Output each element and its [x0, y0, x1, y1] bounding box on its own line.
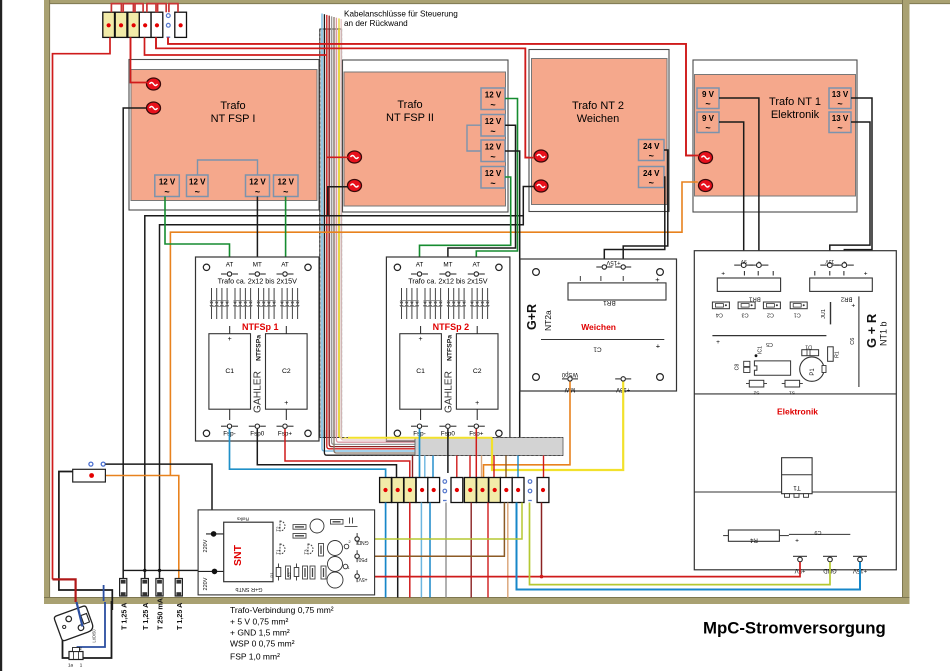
- svg-text:24 V: 24 V: [643, 142, 660, 151]
- svg-text:AT: AT: [473, 262, 481, 269]
- svg-text:Weichen: Weichen: [577, 113, 620, 125]
- svg-text:Trafo NT 1: Trafo NT 1: [769, 96, 821, 108]
- svg-text:~: ~: [649, 151, 654, 161]
- svg-text:MT: MT: [443, 262, 452, 269]
- svg-text:T 250 mA: T 250 mA: [156, 598, 165, 630]
- svg-text:~: ~: [490, 152, 495, 162]
- svg-text:Trafo: Trafo: [397, 99, 422, 111]
- svg-text:C1: C1: [225, 368, 234, 375]
- svg-text:220V: 220V: [203, 539, 209, 552]
- svg-text:+: +: [795, 538, 799, 545]
- svg-text:+: +: [656, 342, 661, 351]
- svg-text:~: ~: [843, 258, 846, 264]
- svg-text:GND: GND: [357, 539, 369, 545]
- svg-text:C8: C8: [735, 364, 741, 371]
- svg-text:1: 1: [347, 566, 349, 570]
- svg-text:G+R: G+R: [525, 304, 539, 330]
- svg-text:C3: C3: [742, 312, 749, 318]
- svg-text:P50: P50: [358, 556, 367, 562]
- svg-text:C6: C6: [850, 338, 856, 345]
- svg-text:C5: C5: [766, 341, 773, 347]
- svg-text:WSP 0 0,75 mm²: WSP 0 0,75 mm²: [230, 639, 295, 649]
- svg-text:~: ~: [649, 178, 654, 188]
- svg-text:NT FSP I: NT FSP I: [211, 113, 256, 125]
- svg-text:NTFSp 1: NTFSp 1: [242, 322, 279, 332]
- svg-text:220V: 220V: [203, 577, 209, 590]
- svg-text:Elektronik: Elektronik: [771, 109, 820, 121]
- svg-text:24 V: 24 V: [643, 169, 660, 178]
- svg-text:MT: MT: [253, 262, 262, 269]
- svg-text:D1: D1: [269, 572, 274, 578]
- svg-text:+: +: [419, 336, 423, 343]
- svg-text:12 V: 12 V: [485, 117, 502, 126]
- svg-text:NTFSp 2: NTFSp 2: [433, 322, 470, 332]
- svg-text:BR2: BR2: [840, 296, 852, 302]
- svg-text:T 1,25 A: T 1,25 A: [141, 603, 150, 630]
- svg-text:+ 5 V 0,75 mm²: + 5 V 0,75 mm²: [230, 617, 289, 627]
- svg-text:+: +: [851, 303, 855, 310]
- svg-text:12 V: 12 V: [485, 91, 502, 100]
- svg-text:C1: C1: [794, 312, 801, 318]
- svg-text:IC1: IC1: [758, 346, 764, 354]
- svg-text:~: ~: [837, 123, 842, 133]
- svg-text:FSP 1,0 mm²: FSP 1,0 mm²: [230, 652, 280, 662]
- svg-text:C4: C4: [716, 312, 723, 318]
- svg-text:Trafo ca. 2x12 bis 2x15V: Trafo ca. 2x12 bis 2x15V: [218, 277, 297, 286]
- svg-text:AT: AT: [416, 262, 424, 269]
- svg-text:9 V: 9 V: [702, 90, 715, 99]
- svg-text:R1: R1: [835, 351, 841, 358]
- svg-text:+ GND 1,5 mm²: + GND 1,5 mm²: [230, 628, 290, 638]
- svg-text:C1: C1: [593, 346, 602, 353]
- svg-text:C2: C2: [473, 368, 482, 375]
- svg-text:AT: AT: [226, 262, 234, 269]
- svg-text:D2: D2: [287, 572, 292, 578]
- svg-text:+15V: +15V: [606, 259, 620, 265]
- svg-text:NT FSP II: NT FSP II: [386, 112, 434, 124]
- svg-text:+5V: +5V: [358, 576, 368, 582]
- svg-text:Trafo-Verbindung 0,75 mm²: Trafo-Verbindung 0,75 mm²: [230, 605, 334, 615]
- svg-text:~: ~: [705, 99, 710, 109]
- svg-text:12 V: 12 V: [485, 169, 502, 178]
- svg-text:S1: S1: [789, 390, 795, 396]
- svg-text:GAHLER: GAHLER: [443, 371, 454, 413]
- svg-text:GAHLER: GAHLER: [253, 371, 264, 413]
- svg-text:~: ~: [758, 258, 761, 264]
- svg-text:+: +: [864, 271, 868, 278]
- svg-text:C9: C9: [814, 529, 821, 535]
- svg-text:Kabelanschlüsse für Steuerung: Kabelanschlüsse für Steuerung: [344, 10, 458, 19]
- svg-text:+: +: [716, 339, 720, 346]
- svg-text:~: ~: [490, 179, 495, 189]
- svg-text:JU1: JU1: [821, 309, 827, 319]
- svg-text:~: ~: [255, 187, 260, 197]
- svg-text:T1: T1: [276, 549, 281, 555]
- svg-text:12 V: 12 V: [249, 178, 266, 187]
- svg-text:NT1 b: NT1 b: [879, 321, 889, 346]
- svg-text:C1: C1: [416, 368, 425, 375]
- svg-text:12 V: 12 V: [485, 143, 502, 152]
- svg-text:~: ~: [705, 123, 710, 133]
- svg-text:Reiks: Reiks: [236, 516, 249, 522]
- svg-text:+: +: [284, 400, 288, 407]
- svg-text:D1: D1: [805, 344, 812, 350]
- svg-text:C2: C2: [767, 312, 774, 318]
- svg-text:P1: P1: [810, 368, 816, 376]
- svg-text:R4: R4: [750, 537, 758, 543]
- svg-text:9V: 9V: [740, 258, 747, 264]
- svg-text:BR1: BR1: [603, 299, 616, 306]
- svg-text:NTFSPa: NTFSPa: [446, 335, 453, 361]
- svg-text:~: ~: [490, 127, 495, 137]
- svg-text:Weichen: Weichen: [581, 322, 616, 332]
- svg-text:~: ~: [490, 100, 495, 110]
- svg-text:S2: S2: [753, 390, 759, 396]
- svg-text:WSp0: WSp0: [561, 371, 578, 377]
- svg-text:AT: AT: [281, 262, 289, 269]
- svg-text:C2: C2: [282, 368, 291, 375]
- svg-text:Trafo: Trafo: [220, 100, 245, 112]
- svg-text:9 V: 9 V: [702, 114, 715, 123]
- svg-text:13 V: 13 V: [832, 114, 849, 123]
- svg-text:T 1,25 A: T 1,25 A: [119, 603, 128, 630]
- svg-text:1a: 1a: [68, 663, 74, 668]
- svg-text:LöDi50: LöDi50: [92, 629, 97, 643]
- svg-text:2: 2: [348, 540, 350, 544]
- svg-text:13V: 13V: [825, 258, 835, 264]
- svg-text:T 1,25 A: T 1,25 A: [175, 603, 184, 630]
- svg-text:Trafo NT 2: Trafo NT 2: [572, 100, 624, 112]
- svg-text:Trafo ca. 2x12 bis 2x15V: Trafo ca. 2x12 bis 2x15V: [408, 277, 487, 286]
- svg-text:T2: T2: [276, 526, 281, 532]
- svg-text:+: +: [228, 336, 232, 343]
- svg-text:NTFSPa: NTFSPa: [256, 335, 263, 361]
- svg-text:SNT: SNT: [232, 544, 244, 566]
- svg-text:T3: T3: [304, 549, 309, 555]
- svg-text:~: ~: [283, 187, 288, 197]
- svg-text:BR1: BR1: [748, 296, 760, 302]
- svg-text:12 V: 12 V: [278, 178, 295, 187]
- svg-text:12 V: 12 V: [189, 178, 206, 187]
- svg-text:G+R SNTb: G+R SNTb: [235, 586, 262, 592]
- svg-text:+: +: [721, 271, 725, 278]
- svg-text:MpC-Stromversorgung: MpC-Stromversorgung: [703, 619, 886, 638]
- svg-text:NT2a: NT2a: [543, 310, 553, 331]
- svg-text:~: ~: [164, 187, 169, 197]
- svg-text:~: ~: [837, 99, 842, 109]
- svg-text:~: ~: [195, 187, 200, 197]
- svg-text:T1: T1: [793, 484, 801, 491]
- svg-text:13 V: 13 V: [832, 90, 849, 99]
- svg-text:G + R: G + R: [864, 313, 879, 348]
- svg-text:+: +: [475, 400, 479, 407]
- svg-text:Elektronik: Elektronik: [777, 407, 818, 417]
- svg-text:an der Rückwand: an der Rückwand: [344, 19, 408, 28]
- svg-text:12 V: 12 V: [159, 178, 176, 187]
